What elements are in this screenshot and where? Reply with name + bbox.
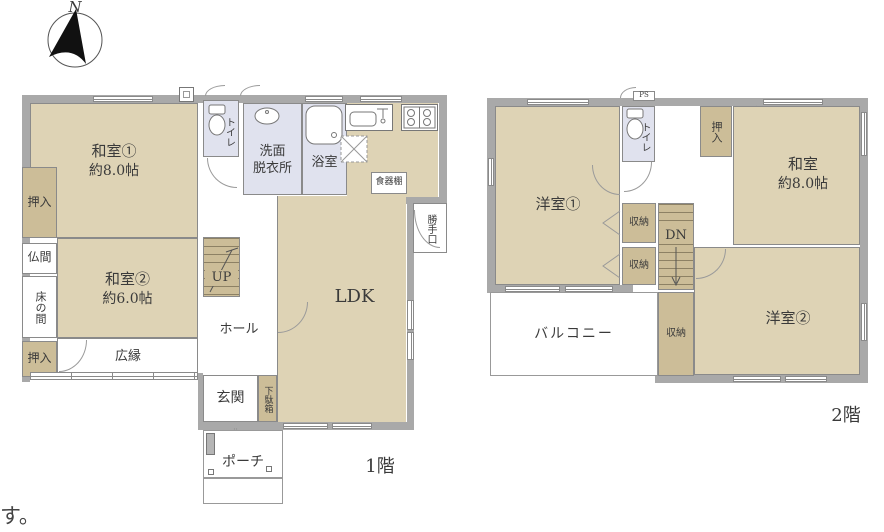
f1-casement-arc-a (205, 85, 225, 96)
f1-porch-step (203, 478, 283, 504)
f1-label-butsuma: 仏間 (22, 250, 57, 266)
f1-label-hall: ホール (211, 322, 267, 339)
f1-washitsu1-name: 和室① (91, 142, 136, 162)
f2-label-toilet: トイレ (638, 114, 651, 160)
f1-wall-left (22, 95, 30, 382)
f1-label-washitsu1: 和室① 約8.0帖 (44, 140, 184, 182)
f1-label-oshiire-bottom: 押入 (22, 351, 57, 367)
f1-washitsu2-size: 約6.0帖 (102, 290, 152, 308)
floorplan-canvas: N 和室① 約8.0帖 押入 仏間 床の間 押入 和室② 約6.0帖 広縁 トイ… (0, 0, 884, 532)
f1-floor-label: 1階 (356, 455, 404, 479)
f2-label-shunou-a: 収納 (622, 215, 656, 230)
f1-bathtub-icon (305, 105, 343, 145)
f1-label-senmen: 洗面 脱衣所 (243, 143, 302, 179)
f2-label-yoshitsu2: 洋室② (750, 309, 826, 329)
f1-utility-box-inner-icon (183, 91, 190, 98)
f2-label-dn: DN (659, 228, 693, 244)
f2-window-left (488, 158, 494, 186)
f2-window-bottom-a (733, 376, 781, 382)
f2-window-balcony-a (505, 286, 560, 292)
compass-north-label: N (66, 0, 84, 16)
f2-bifold-chevron-b-icon (601, 253, 621, 279)
f2-label-ps: PS (633, 91, 655, 101)
f2-label-balcony: バルコニー (523, 325, 625, 343)
f1-casement-arc-b (240, 85, 260, 96)
f1-stairs-arrow-icon (204, 240, 240, 296)
f1-window-top-washitsu (93, 96, 153, 102)
f1-label-genkan: 玄関 (207, 390, 254, 407)
f2-door-toilet (624, 162, 652, 192)
f1-label-toilet: トイレ (222, 110, 236, 154)
f2-window-right-a (861, 112, 867, 156)
f1-label-up: UP (205, 270, 238, 286)
f2-window-right-b (861, 303, 867, 341)
f1-washitsu1-size: 約8.0帖 (89, 162, 139, 180)
f1-stove-icon (401, 104, 438, 131)
f1-senmen-line1: 洗面 (259, 144, 285, 161)
f2-label-shunou-c: 収納 (658, 326, 694, 341)
f2-label-washitsu: 和室 約8.0帖 (760, 152, 846, 196)
f1-window-bottom-ldk-b (332, 423, 372, 429)
f1-refrigerator-space-icon (340, 135, 368, 163)
f1-window-right-ldk-b (407, 332, 414, 360)
caption-partial-text: す。 (0, 500, 70, 530)
f1-label-hiroen: 広縁 (88, 348, 168, 366)
f2-stairs-arrow-icon (670, 247, 682, 289)
f2-label-oshiire: 押入 (708, 111, 724, 153)
f1-label-washitsu2: 和室② 約6.0帖 (57, 268, 198, 310)
f2-wall-left (487, 98, 495, 292)
f1-door-toilet (207, 158, 237, 188)
f2-casement-arc (620, 87, 636, 98)
f2-window-bottom-b (785, 376, 827, 382)
f1-washitsu2-name: 和室② (105, 270, 150, 290)
f1-label-ldk: LDK (317, 286, 392, 308)
f1-window-top-bath (305, 96, 343, 102)
f2-washitsu-size: 約8.0帖 (778, 175, 828, 193)
f2-window-balcony-b (565, 286, 613, 292)
f1-washbasin-icon (254, 107, 280, 125)
f2-window-top-left (527, 99, 589, 105)
f1-wall-right-upper (439, 95, 447, 205)
f2-bifold-chevron-a-icon (601, 210, 621, 236)
f1-label-getabako: 下駄箱 (262, 377, 274, 421)
f2-floor-label: 2階 (822, 404, 870, 428)
f1-window-hiroen (30, 372, 198, 380)
f1-window-right-ldk-a (407, 300, 414, 330)
f1-senmen-line2: 脱衣所 (253, 161, 292, 178)
f2-window-top-right (763, 99, 823, 105)
f1-label-tokonoma: 床の間 (30, 278, 50, 336)
f1-label-porch: ポーチ (211, 452, 275, 472)
f2-label-yoshitsu1: 洋室① (521, 195, 595, 215)
f2-washitsu-name: 和室 (788, 155, 818, 175)
f1-window-bottom-ldk-a (283, 423, 328, 429)
f1-label-shokkidana: 食器棚 (371, 177, 407, 189)
f2-label-shunou-b: 収納 (622, 258, 656, 273)
f1-label-oshiire-top: 押入 (22, 195, 57, 211)
f1-kitchen-sink-icon (345, 104, 393, 131)
f1-window-top-kitchen (360, 96, 402, 102)
